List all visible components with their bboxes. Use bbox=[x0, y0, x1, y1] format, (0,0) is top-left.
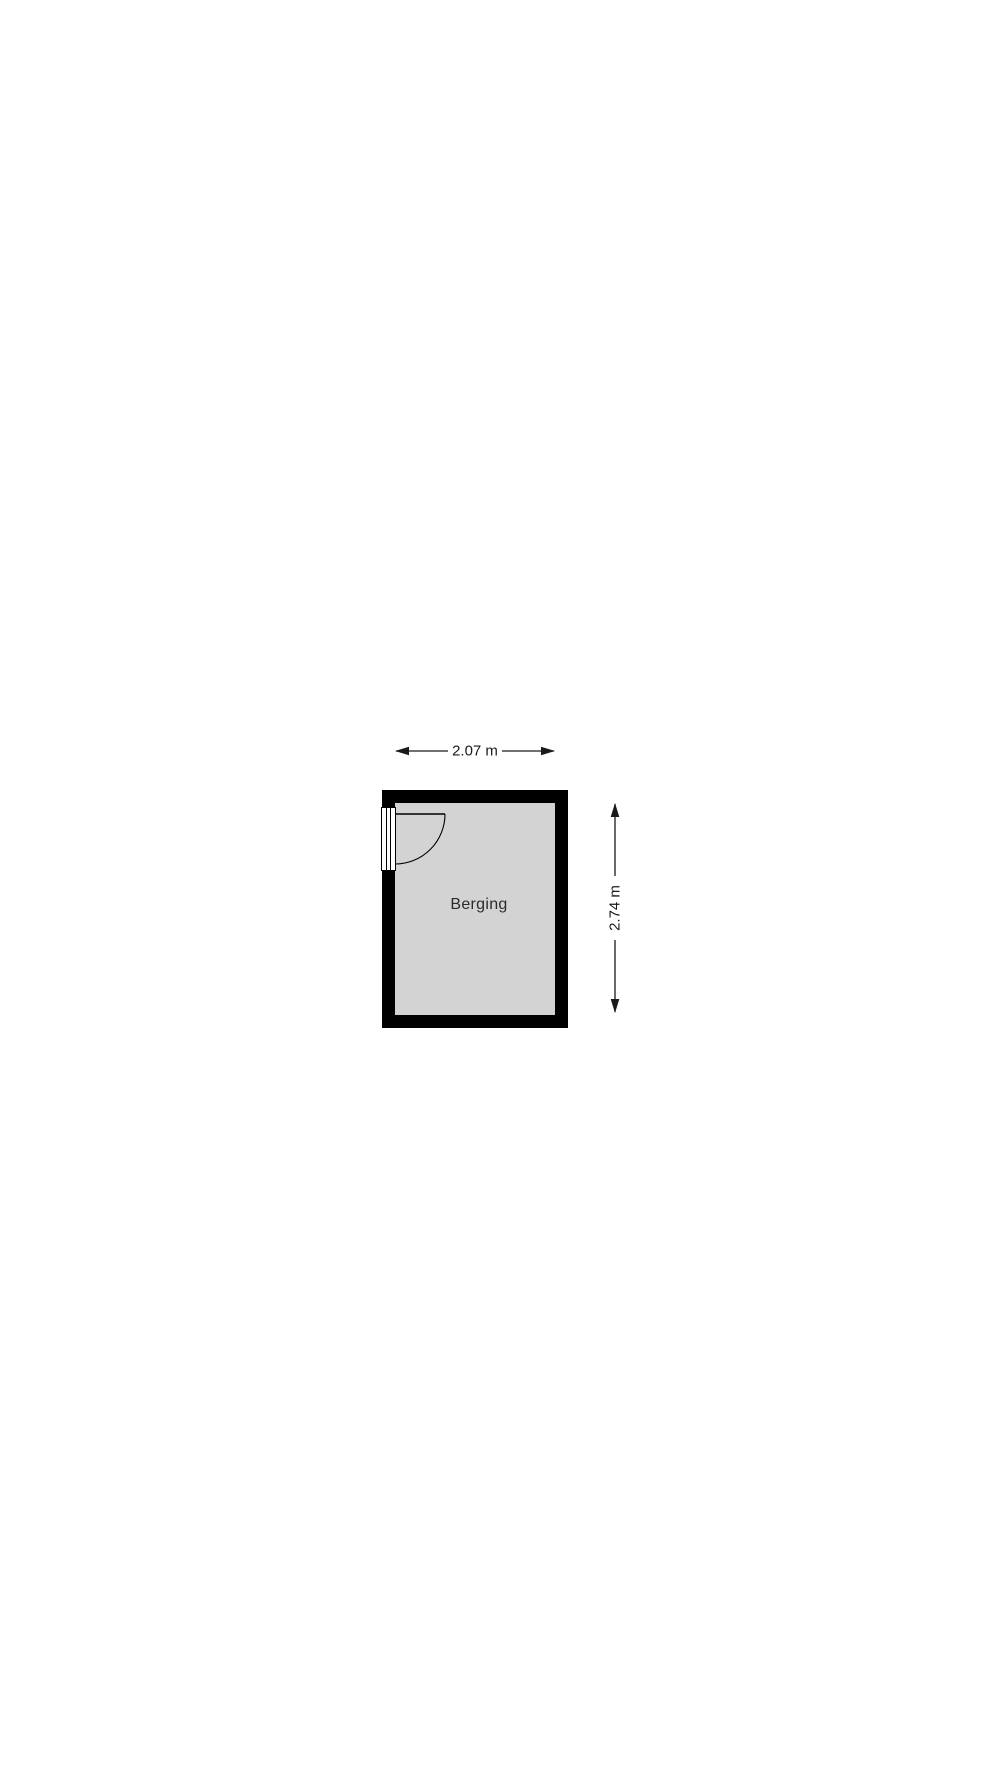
door-opening bbox=[381, 807, 396, 871]
door-jamb-line bbox=[390, 808, 391, 870]
width-dimension-label: 2.07 m bbox=[452, 744, 498, 759]
door-jamb-line bbox=[386, 808, 387, 870]
room-label: Berging bbox=[450, 897, 507, 913]
width-dim-arrow-left-icon bbox=[395, 747, 409, 756]
floorplan-canvas: 2.07 m 2.74 m Berging bbox=[0, 0, 1000, 1777]
height-dim-arrow-up-icon bbox=[611, 803, 620, 817]
height-dimension-label: 2.74 m bbox=[608, 885, 623, 931]
height-dim-arrow-down-icon bbox=[611, 999, 620, 1013]
width-dim-arrow-right-icon bbox=[541, 747, 555, 756]
